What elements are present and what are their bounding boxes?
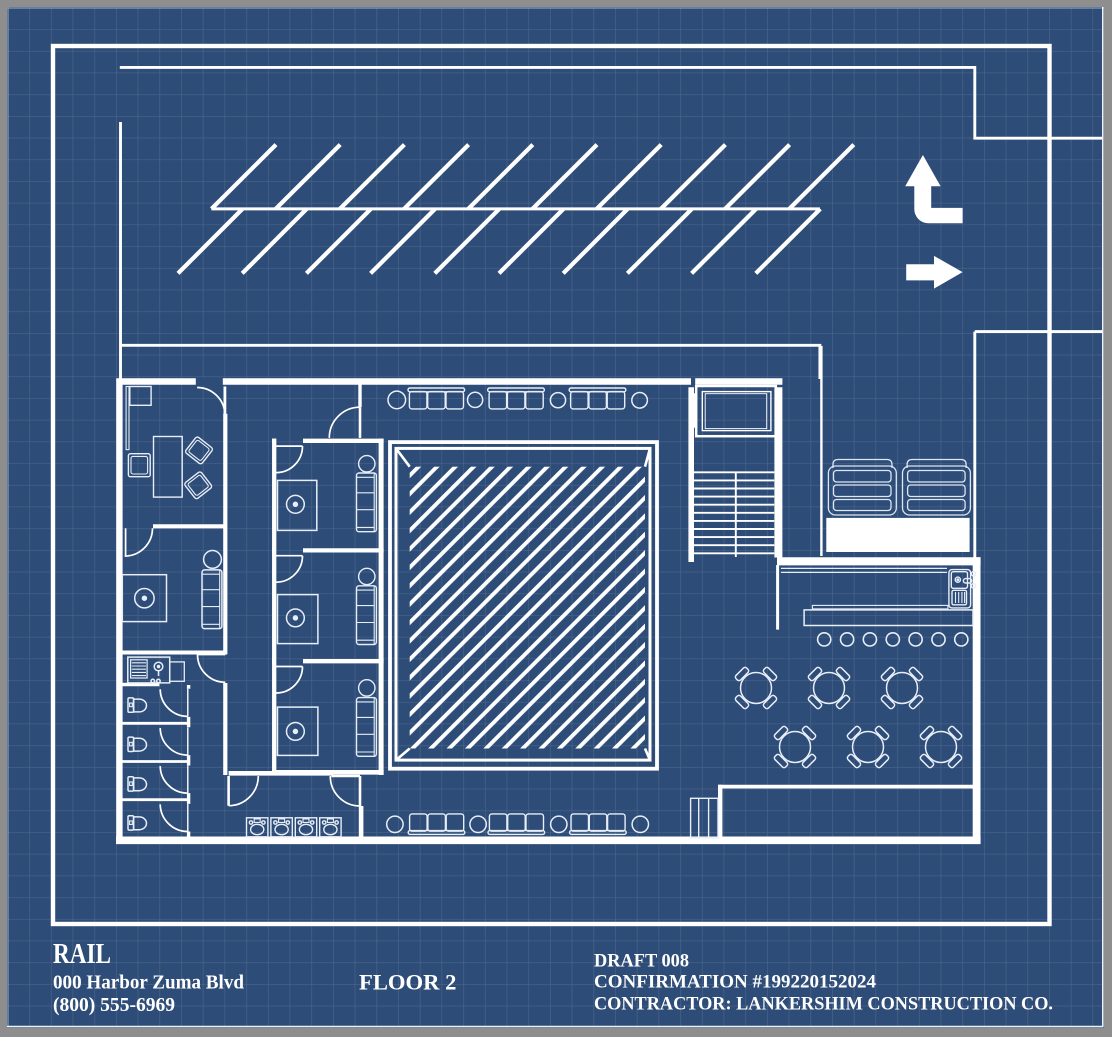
svg-text:(800) 555-6969: (800) 555-6969 [53, 994, 175, 1016]
svg-text:RAIL: RAIL [53, 938, 111, 970]
svg-text:DRAFT 008: DRAFT 008 [594, 952, 689, 972]
svg-text:CONTRACTOR: LANKERSHIM CONSTRU: CONTRACTOR: LANKERSHIM CONSTRUCTION CO. [594, 995, 1053, 1015]
svg-text:CONFIRMATION #199220152024: CONFIRMATION #199220152024 [594, 973, 876, 993]
svg-text:FLOOR 2: FLOOR 2 [359, 970, 457, 995]
svg-text:000 Harbor Zuma Blvd: 000 Harbor Zuma Blvd [53, 972, 245, 994]
